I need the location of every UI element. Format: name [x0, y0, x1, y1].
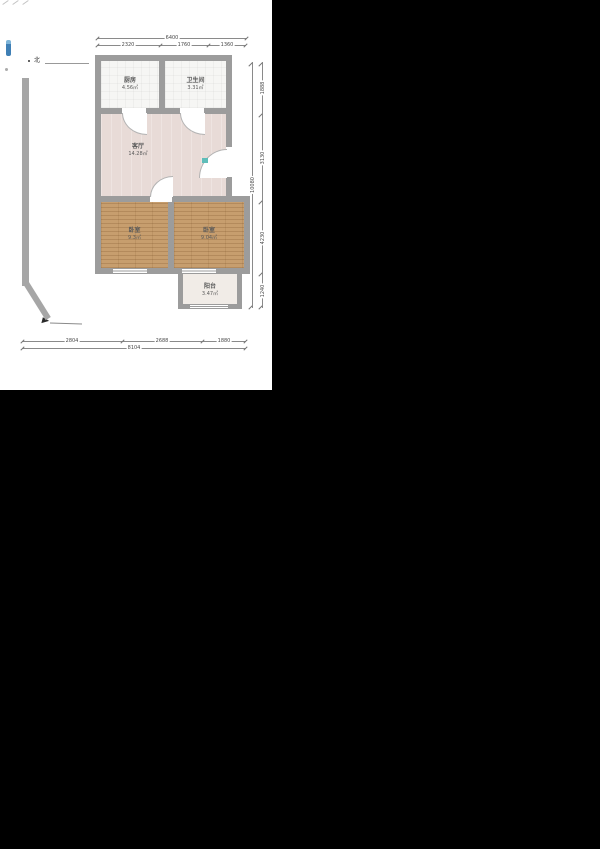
- room-label-bedroom-right: 卧室 9.04㎡: [174, 227, 244, 241]
- room-name: 客厅: [101, 143, 175, 151]
- dim-tick: [243, 339, 247, 343]
- wall-right-upper: [226, 55, 232, 202]
- room-area: 4.56㎡: [101, 85, 159, 91]
- dim-tick: [243, 346, 247, 350]
- room-label-bathroom: 卫生间 3.31㎡: [165, 77, 226, 91]
- annotation-line: [50, 322, 82, 324]
- dim-label-top-seg1: 2320: [121, 42, 136, 48]
- room-label-living: 客厅 14.28㎡: [101, 143, 175, 157]
- wall-kitchen-living: [95, 108, 232, 114]
- room-name: 卧室: [101, 227, 168, 235]
- dim-label-bottom-seg1: 2804: [65, 338, 80, 344]
- room-name: 卧室: [174, 227, 244, 235]
- bedroom-left-window: [113, 268, 147, 274]
- floorplan-canvas: 北 厨房 4.56㎡ 卫生间 3.31㎡ 客厅 14.28㎡: [0, 0, 272, 390]
- dim-label-right-seg1: 1888: [260, 81, 266, 96]
- dim-label-right-seg3: 4230: [260, 231, 266, 246]
- dim-label-right-total: 10080: [250, 176, 256, 194]
- room-area: 3.47㎡: [183, 291, 237, 297]
- north-marker-dot: [28, 60, 30, 62]
- ui-artifact: [2, 0, 8, 5]
- ui-artifact: [22, 0, 28, 5]
- dim-label-bottom-seg3: 1880: [217, 338, 232, 344]
- room-label-bedroom-left: 卧室 9.3㎡: [101, 227, 168, 241]
- balcony-window: [190, 304, 228, 309]
- north-label: 北: [34, 55, 40, 64]
- room-area: 9.3㎡: [101, 235, 168, 241]
- room-area: 3.31㎡: [165, 85, 226, 91]
- room-area: 9.04㎡: [174, 235, 244, 241]
- room-name: 卫生间: [165, 77, 226, 85]
- dim-label-top-total: 6400: [165, 35, 180, 41]
- dim-label-top-seg2: 1760: [177, 42, 192, 48]
- exterior-wall-strip: [22, 78, 29, 286]
- room-name: 厨房: [101, 77, 159, 85]
- north-marker-line: [45, 63, 89, 64]
- room-name: 阳台: [183, 283, 237, 291]
- dim-tick: [243, 43, 247, 47]
- room-label-kitchen: 厨房 4.56㎡: [101, 77, 159, 91]
- dim-tick: [244, 36, 248, 40]
- exterior-wall-diagonal: [23, 281, 50, 320]
- ui-artifact: [6, 40, 11, 56]
- dim-label-bottom-total: 8104: [127, 345, 142, 351]
- ui-artifact: [5, 68, 8, 71]
- wall-right-lower: [244, 196, 250, 274]
- dim-label-bottom-seg2: 2688: [155, 338, 170, 344]
- fixture-mark: [202, 158, 208, 163]
- dim-label-right-seg2: 3130: [260, 151, 266, 166]
- dim-label-top-seg3: 1360: [220, 42, 235, 48]
- room-label-balcony: 阳台 3.47㎡: [183, 283, 237, 297]
- room-area: 14.28㎡: [101, 151, 175, 157]
- dim-line-right-segments: [262, 62, 263, 308]
- dim-label-right-seg4: 1240: [260, 284, 266, 299]
- dim-line-bottom-segments: [22, 341, 246, 342]
- bedroom-right-window: [182, 268, 216, 274]
- ui-artifact: [12, 0, 18, 5]
